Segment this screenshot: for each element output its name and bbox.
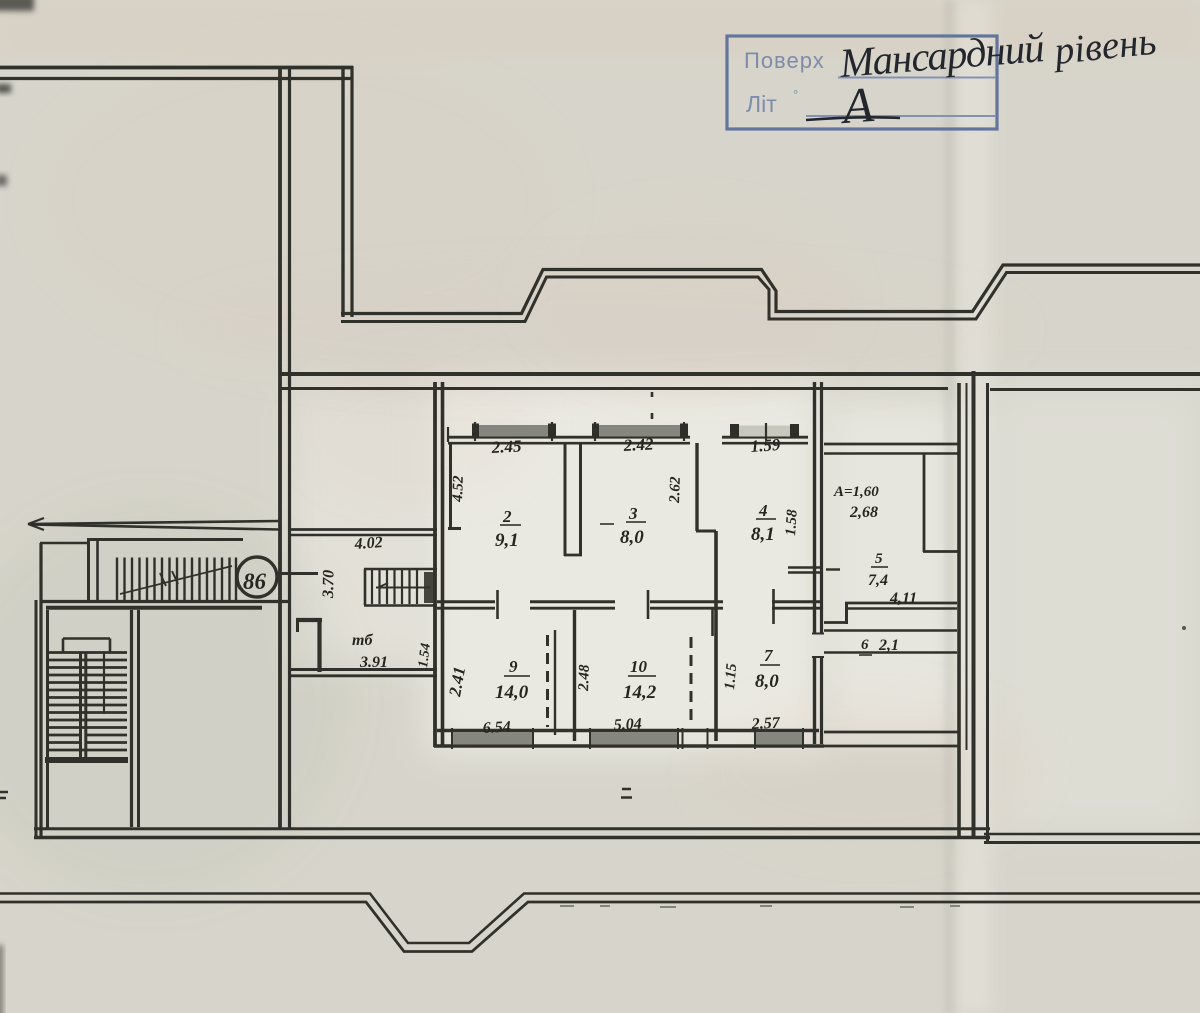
svg-text:10: 10 — [630, 657, 648, 676]
svg-text:1.59: 1.59 — [750, 435, 782, 456]
svg-text:2,1: 2,1 — [878, 637, 899, 654]
svg-text:2.45: 2.45 — [490, 436, 522, 457]
svg-text:тб: тб — [352, 632, 373, 649]
svg-text:9,1: 9,1 — [495, 530, 519, 551]
svg-text:2,68: 2,68 — [849, 504, 878, 521]
svg-text:Поверх: Поверх — [744, 48, 825, 73]
svg-text:3.91: 3.91 — [359, 654, 388, 671]
svg-text:А=1,60: А=1,60 — [833, 484, 879, 500]
svg-text:14,0: 14,0 — [495, 682, 529, 703]
svg-text:6.54: 6.54 — [482, 719, 511, 737]
svg-text:6: 6 — [861, 637, 869, 653]
svg-text:2.48: 2.48 — [576, 664, 593, 692]
svg-text:14,2: 14,2 — [623, 682, 657, 703]
svg-text:86: 86 — [243, 569, 267, 594]
svg-text:4.52: 4.52 — [450, 475, 467, 503]
svg-text:8,0: 8,0 — [755, 671, 779, 692]
svg-text:3.70: 3.70 — [320, 570, 338, 599]
svg-text:2.62: 2.62 — [667, 476, 684, 504]
svg-text:9: 9 — [509, 657, 518, 676]
svg-text:2: 2 — [502, 507, 512, 526]
svg-text:8,1: 8,1 — [751, 524, 775, 545]
svg-text:2.57: 2.57 — [750, 715, 781, 734]
svg-text:1.15: 1.15 — [722, 662, 740, 690]
svg-text:°: ° — [793, 87, 798, 102]
svg-text:2.42: 2.42 — [622, 434, 654, 455]
svg-text:1.54: 1.54 — [416, 642, 434, 668]
svg-text:7,4: 7,4 — [868, 572, 888, 589]
svg-text:4,11: 4,11 — [889, 590, 917, 607]
svg-text:5.04: 5.04 — [613, 716, 642, 734]
svg-text:Літ: Літ — [746, 91, 777, 117]
svg-text:8,0: 8,0 — [620, 527, 644, 548]
svg-text:5: 5 — [875, 551, 883, 567]
svg-text:4.02: 4.02 — [353, 534, 383, 553]
svg-text:А: А — [838, 76, 876, 134]
svg-text:4: 4 — [758, 501, 768, 520]
svg-text:1.58: 1.58 — [783, 508, 801, 536]
svg-text:3: 3 — [628, 504, 638, 523]
